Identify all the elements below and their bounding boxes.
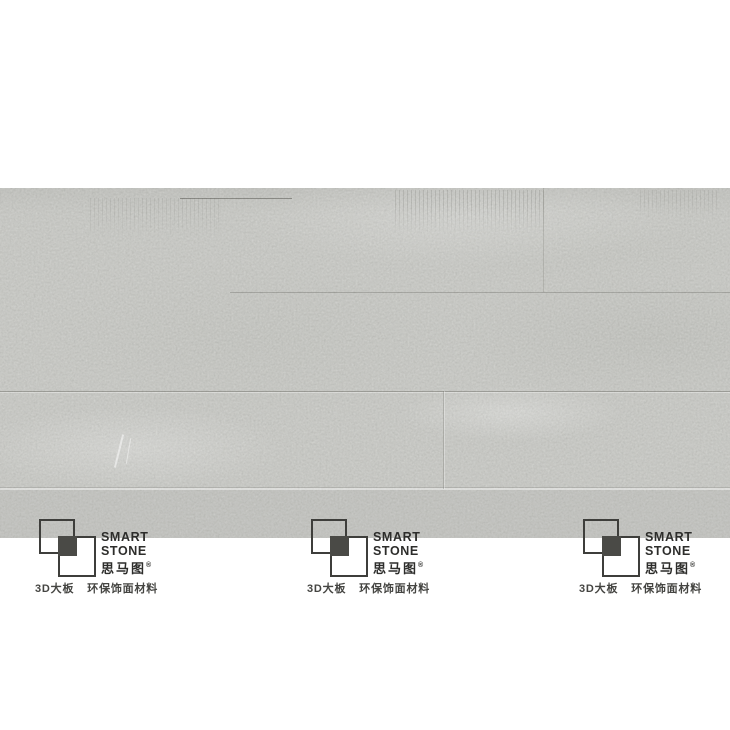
surface-scratch bbox=[126, 438, 131, 464]
logo-overlap-square-icon bbox=[58, 536, 77, 556]
tagline-material: 环保饰面材料 bbox=[359, 583, 430, 595]
registered-mark: ® bbox=[690, 562, 695, 569]
trowel-striations bbox=[395, 190, 545, 234]
plank-seam-highlight bbox=[0, 392, 730, 393]
tagline-product: 3D大板 bbox=[307, 583, 346, 595]
trowel-striations bbox=[90, 198, 220, 238]
product-image: SMART STONE 思马图® 3D大板环保饰面材料 SMART STONE … bbox=[0, 0, 730, 730]
tagline-material: 环保饰面材料 bbox=[631, 583, 702, 595]
tagline-product: 3D大板 bbox=[35, 583, 74, 595]
registered-mark: ® bbox=[146, 562, 151, 569]
brand-name-en-line1: SMART bbox=[373, 531, 423, 545]
tagline-product: 3D大板 bbox=[579, 583, 618, 595]
tagline-material: 环保饰面材料 bbox=[87, 583, 158, 595]
product-tagline: 3D大板环保饰面材料 bbox=[579, 580, 702, 596]
smartstone-logo: SMART STONE 思马图® 3D大板环保饰面材料 bbox=[307, 516, 492, 598]
brand-name-cn: 思马图® bbox=[101, 559, 151, 576]
brand-name-cn: 思马图® bbox=[373, 559, 423, 576]
brand-name-cn: 思马图® bbox=[645, 559, 695, 576]
smartstone-logo: SMART STONE 思马图® 3D大板环保饰面材料 bbox=[35, 516, 220, 598]
brand-name-cn-text: 思马图 bbox=[373, 561, 418, 576]
smartstone-logo: SMART STONE 思马图® 3D大板环保饰面材料 bbox=[579, 516, 730, 598]
stone-panel: SMART STONE 思马图® 3D大板环保饰面材料 SMART STONE … bbox=[0, 188, 730, 538]
brand-name-en-line1: SMART bbox=[101, 531, 151, 545]
logo-overlap-square-icon bbox=[602, 536, 621, 556]
brand-name: SMART STONE 思马图® bbox=[373, 531, 423, 576]
brand-name-en-line2: STONE bbox=[645, 545, 695, 559]
surface-scratch bbox=[180, 198, 292, 199]
registered-mark: ® bbox=[418, 562, 423, 569]
plank-seam bbox=[230, 292, 730, 293]
brand-name-en-line1: SMART bbox=[645, 531, 695, 545]
trowel-striations bbox=[640, 190, 720, 220]
product-tagline: 3D大板环保饰面材料 bbox=[35, 580, 158, 596]
brand-name-cn-text: 思马图 bbox=[645, 561, 690, 576]
brand-name-cn-text: 思马图 bbox=[101, 561, 146, 576]
concrete-noise-texture bbox=[0, 188, 730, 538]
plank-seam-highlight bbox=[444, 391, 445, 489]
logo-overlap-square-icon bbox=[330, 536, 349, 556]
product-tagline: 3D大板环保饰面材料 bbox=[307, 580, 430, 596]
brand-name: SMART STONE 思马图® bbox=[101, 531, 151, 576]
surface-scratch bbox=[114, 434, 124, 467]
brand-name: SMART STONE 思马图® bbox=[645, 531, 695, 576]
brand-name-en-line2: STONE bbox=[373, 545, 423, 559]
plank-seam-vertical bbox=[543, 188, 544, 292]
brand-name-en-line2: STONE bbox=[101, 545, 151, 559]
